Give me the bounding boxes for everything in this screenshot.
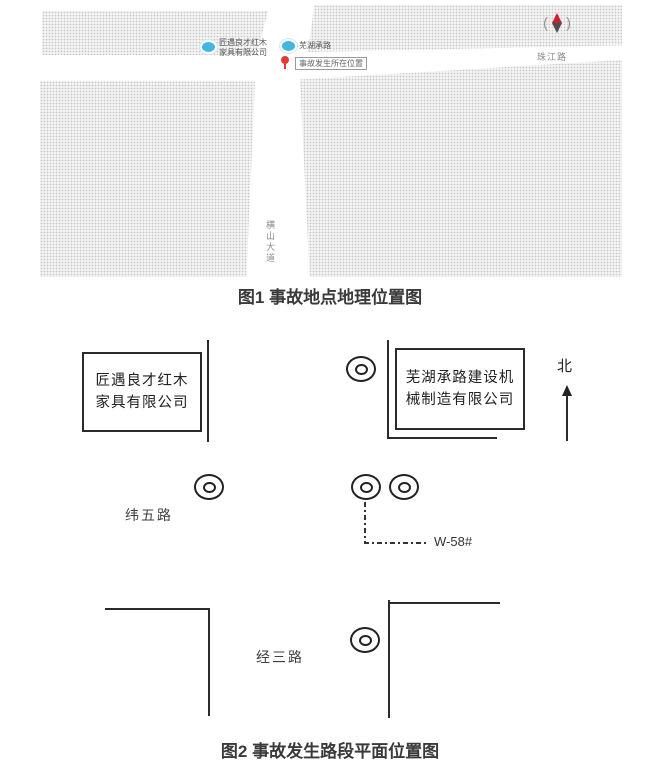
- road-edge-line: [207, 340, 209, 442]
- map-block-bottom-right: [300, 60, 622, 277]
- compass-icon: ( ): [543, 13, 571, 33]
- road-edge-line: [387, 437, 497, 439]
- manhole-icon: [346, 356, 376, 382]
- map-block-top-right: [308, 5, 622, 52]
- map-block-bottom-left: [40, 81, 255, 277]
- manhole-icon: [194, 474, 224, 500]
- right-company-box: 芜湖承路建设机 械制造有限公司: [395, 348, 525, 430]
- road-edge-line: [388, 602, 500, 604]
- road-label-jingsan: 经三路: [256, 647, 304, 667]
- poi-label-furniture: 匠遇良才红木 家具有限公司: [219, 38, 267, 58]
- north-label: 北: [557, 355, 572, 376]
- figure2-caption: 图2 事故发生路段平面位置图: [0, 737, 660, 762]
- well-leader-line-horizontal: [364, 542, 428, 544]
- road-edge-line: [387, 340, 389, 439]
- well-label: W-58#: [434, 534, 472, 549]
- poi-label-chenglu: 芜湖承路: [299, 41, 331, 51]
- left-company-line1: 匠遇良才红木: [96, 370, 189, 392]
- compass-needle-icon: [552, 13, 562, 33]
- road-edge-line: [105, 608, 210, 610]
- well-leader-line-vertical: [364, 502, 366, 544]
- road-label-zhujiang: 珠江路: [537, 50, 567, 63]
- poi-label-furniture-line2: 家具有限公司: [219, 48, 267, 58]
- poi-label-furniture-line1: 匠遇良才红木: [219, 38, 267, 48]
- right-company-line2: 械制造有限公司: [406, 389, 515, 411]
- compass-left-arc: (: [543, 16, 548, 31]
- figure1-map: 匠遇良才红木 家具有限公司 芜湖承路 事故发生所在位置 珠江路 横山大道 ( ): [40, 5, 622, 277]
- figure2-plan-diagram: 匠遇良才红木 家具有限公司 芜湖承路建设机 械制造有限公司 北 纬五路 W-58…: [80, 335, 582, 730]
- right-company-line1: 芜湖承路建设机: [406, 367, 515, 389]
- figure1-caption: 图1 事故地点地理位置图: [0, 283, 660, 308]
- accident-pin-icon: [281, 56, 289, 69]
- accident-location-label: 事故发生所在位置: [295, 57, 367, 70]
- north-arrow-shaft: [566, 395, 568, 441]
- compass-right-arc: ): [566, 16, 571, 31]
- poi-marker-chenglu-icon: [280, 39, 297, 53]
- manhole-icon: [351, 474, 381, 500]
- left-company-box: 匠遇良才红木 家具有限公司: [82, 352, 202, 432]
- manhole-icon: [389, 474, 419, 500]
- manhole-icon: [350, 627, 380, 653]
- road-label-weiwu: 纬五路: [125, 505, 173, 525]
- road-label-hengshan: 横山大道: [264, 220, 277, 264]
- road-edge-line: [388, 600, 390, 718]
- poi-marker-furniture-icon: [200, 40, 217, 54]
- road-edge-line: [208, 608, 210, 716]
- left-company-line2: 家具有限公司: [96, 392, 189, 414]
